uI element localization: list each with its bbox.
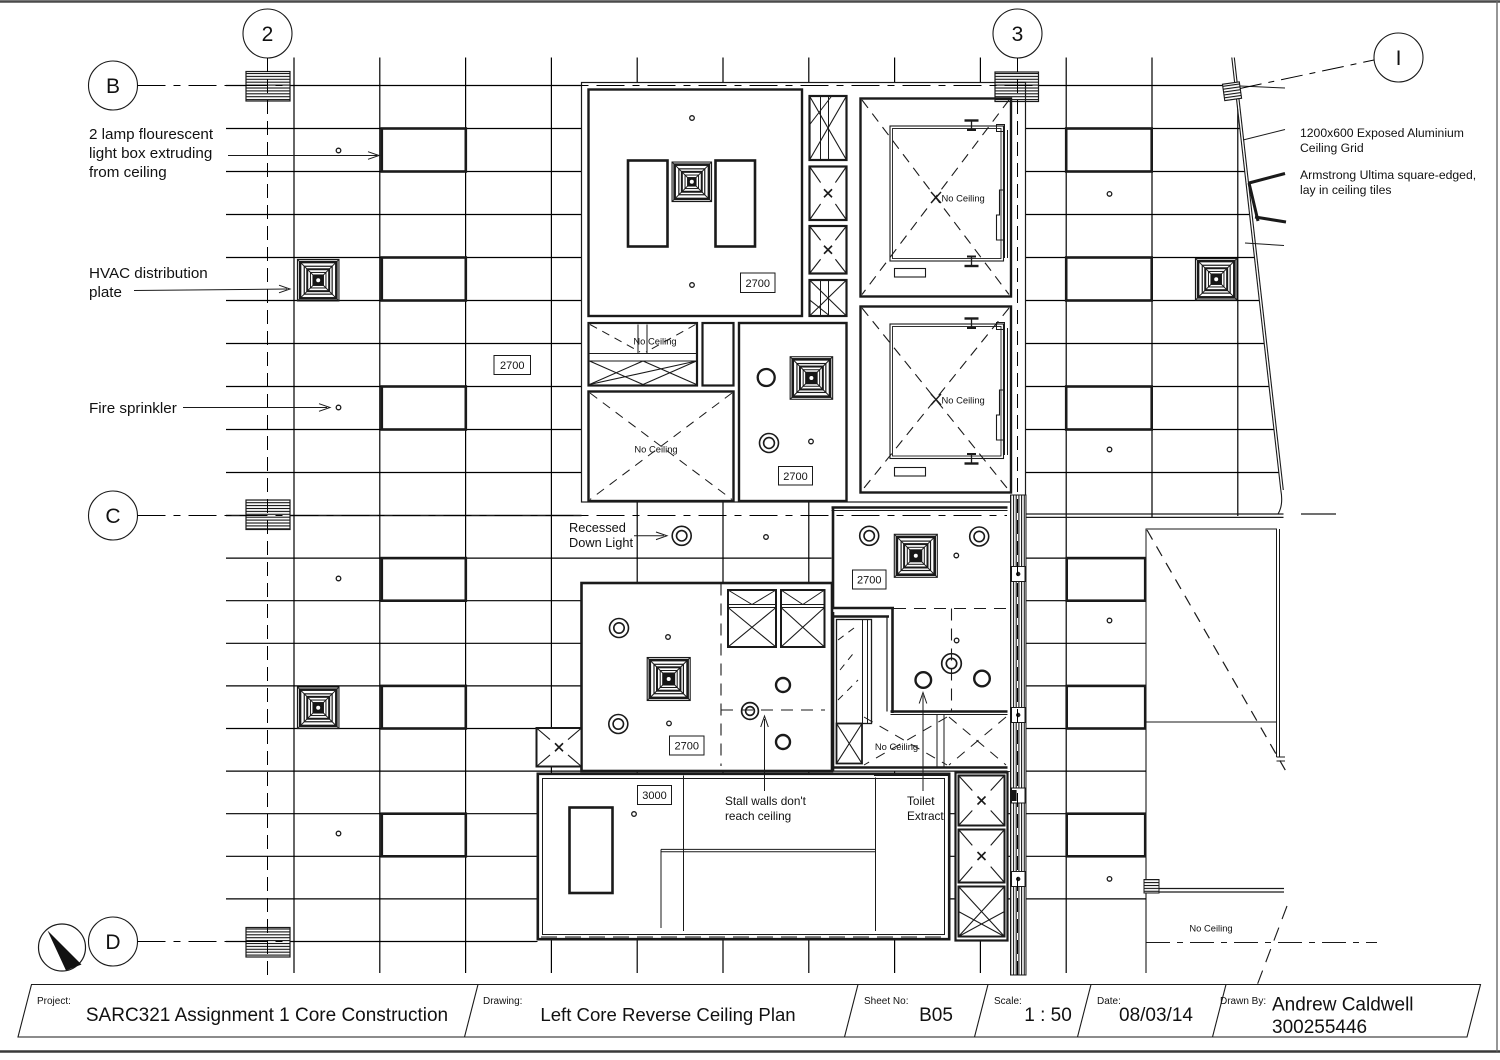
svg-text:Extract: Extract [907, 809, 944, 823]
svg-text:C: C [105, 505, 120, 528]
svg-text:No Ceiling: No Ceiling [942, 395, 985, 406]
svg-text:HVAC distribution: HVAC distribution [89, 265, 208, 282]
svg-text:Armstrong Ultima square-edged,: Armstrong Ultima square-edged, [1300, 168, 1476, 182]
svg-text:No Ceiling: No Ceiling [942, 193, 985, 204]
svg-text:plate: plate [89, 284, 122, 301]
svg-text:B05: B05 [919, 1005, 953, 1026]
svg-text:light box extruding: light box extruding [89, 145, 212, 162]
svg-text:3000: 3000 [642, 790, 666, 802]
svg-text:reach ceiling: reach ceiling [725, 809, 791, 823]
svg-text:Ceiling Grid: Ceiling Grid [1300, 141, 1364, 155]
svg-text:Sheet No:: Sheet No: [864, 996, 908, 1007]
svg-text:2700: 2700 [746, 278, 770, 290]
svg-text:2700: 2700 [857, 575, 881, 587]
svg-text:Project:: Project: [37, 996, 71, 1007]
svg-text:Drawn By:: Drawn By: [1220, 996, 1266, 1007]
svg-text:No Ceiling: No Ceiling [633, 336, 676, 347]
svg-text:B: B [106, 75, 120, 98]
svg-text:2: 2 [262, 23, 274, 46]
svg-text:Andrew Caldwell: Andrew Caldwell [1272, 995, 1414, 1016]
svg-text:No Ceiling: No Ceiling [1189, 923, 1232, 934]
svg-text:Toilet: Toilet [907, 794, 935, 808]
svg-text:Fire sprinkler: Fire sprinkler [89, 400, 177, 417]
svg-text:Down Light: Down Light [569, 535, 633, 550]
svg-text:No Ceiling: No Ceiling [634, 444, 677, 455]
svg-text:08/03/14: 08/03/14 [1119, 1005, 1193, 1026]
svg-text:lay in ceiling tiles: lay in ceiling tiles [1300, 183, 1391, 197]
svg-text:2 lamp flourescent: 2 lamp flourescent [89, 126, 214, 143]
svg-text:2700: 2700 [783, 471, 807, 483]
svg-text:I: I [1396, 47, 1402, 70]
svg-text:No Ceiling: No Ceiling [875, 741, 918, 752]
svg-text:Scale:: Scale: [994, 996, 1022, 1007]
svg-text:1 : 50: 1 : 50 [1024, 1005, 1072, 1026]
svg-text:3: 3 [1012, 23, 1024, 46]
svg-text:1200x600 Exposed Aluminium: 1200x600 Exposed Aluminium [1300, 126, 1464, 140]
svg-text:Stall walls don't: Stall walls don't [725, 794, 807, 808]
svg-text:2700: 2700 [675, 741, 699, 753]
svg-text:2700: 2700 [500, 360, 524, 372]
svg-text:300255446: 300255446 [1272, 1017, 1367, 1038]
svg-text:Recessed: Recessed [569, 520, 626, 535]
svg-text:from ceiling: from ceiling [89, 164, 167, 181]
svg-text:Date:: Date: [1097, 996, 1121, 1007]
svg-text:SARC321 Assignment 1 Core Cons: SARC321 Assignment 1 Core Construction [86, 1005, 448, 1026]
svg-text:D: D [105, 931, 120, 954]
svg-text:Drawing:: Drawing: [483, 996, 522, 1007]
svg-text:Left Core Reverse Ceiling Plan: Left Core Reverse Ceiling Plan [540, 1004, 795, 1025]
